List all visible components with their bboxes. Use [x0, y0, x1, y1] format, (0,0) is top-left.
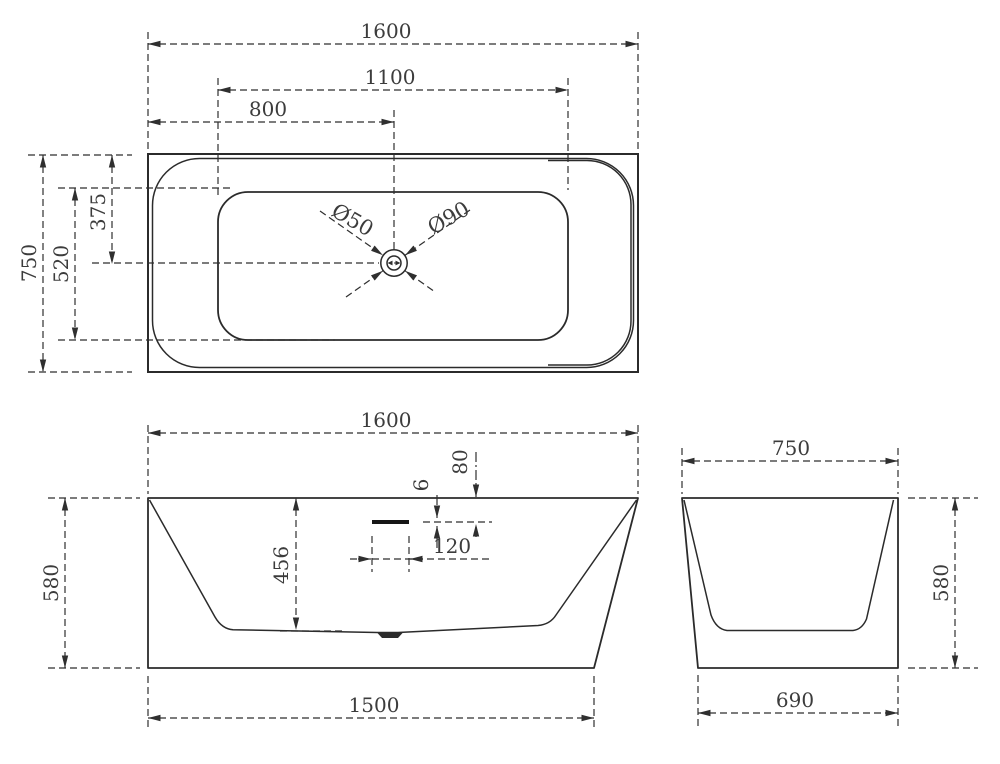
- dim-label-1600-top: 1600: [361, 19, 412, 43]
- dim-front-overall-height: 580: [39, 498, 140, 668]
- dim-front-overall-length: 1600: [148, 408, 638, 494]
- dim-label-80: 80: [448, 449, 472, 474]
- side-outline: [682, 498, 898, 668]
- top-view-extension-lines: [28, 32, 638, 372]
- dim-top-drain-offset-y: 375: [86, 155, 112, 264]
- top-view: Ø50 Ø90 1600 1100 800 750 520 375: [17, 19, 638, 372]
- drawing-page: Ø50 Ø90 1600 1100 800 750 520 375: [0, 0, 1000, 764]
- dim-label-750-side: 750: [772, 436, 810, 460]
- drain-leader-lower-right: [405, 271, 433, 291]
- dim-side-base-width: 690: [698, 675, 898, 728]
- dim-drain-small-label: Ø50: [327, 199, 377, 242]
- dim-side-overall-width: 750: [682, 436, 898, 494]
- front-drain-recess: [377, 633, 403, 639]
- basin-opening-outline: [218, 192, 568, 340]
- drain-inner-arrow-left: [388, 261, 393, 266]
- drain: Ø50 Ø90: [320, 197, 474, 297]
- dim-front-base-length: 1500: [148, 676, 594, 730]
- dim-front-overflow-slot-width: 120: [350, 534, 490, 572]
- dim-label-6: 6: [409, 479, 433, 492]
- dim-label-690: 690: [776, 688, 814, 712]
- dim-side-overall-height: 580: [908, 498, 978, 668]
- drain-inner-arrow-right: [396, 261, 401, 266]
- side-view: 750 580 690: [682, 436, 978, 728]
- dim-top-inner-length: 1100: [218, 65, 568, 90]
- dim-top-inner-width: 520: [49, 188, 75, 340]
- dim-label-1100: 1100: [365, 65, 416, 89]
- bathtub-technical-drawing: Ø50 Ø90 1600 1100 800 750 520 375: [0, 0, 1000, 764]
- front-view: 1600 580 456 80 6: [39, 408, 638, 730]
- dim-label-520: 520: [49, 245, 73, 283]
- dim-label-456: 456: [269, 546, 293, 584]
- dim-label-1500: 1500: [349, 693, 400, 717]
- dim-label-580-front: 580: [39, 564, 63, 602]
- dim-top-overall-length: 1600: [148, 19, 638, 44]
- front-basin-interior: [150, 500, 637, 633]
- dim-label-800: 800: [249, 97, 287, 121]
- dim-label-580-side: 580: [929, 564, 953, 602]
- side-basin-interior: [684, 500, 894, 631]
- dim-label-120: 120: [433, 534, 471, 558]
- dim-label-750-top: 750: [17, 244, 41, 282]
- dim-label-375: 375: [86, 193, 110, 231]
- dim-front-rim-to-overflow: 80: [423, 449, 492, 537]
- dim-top-drain-offset-x: 800: [148, 97, 394, 122]
- dim-top-overall-width: 750: [17, 155, 43, 372]
- drain-leader-lower-left: [346, 271, 383, 297]
- dim-label-1600-front: 1600: [361, 408, 412, 432]
- dim-drain-large-label: Ø90: [423, 197, 473, 240]
- dim-front-basin-depth: 456: [269, 498, 345, 631]
